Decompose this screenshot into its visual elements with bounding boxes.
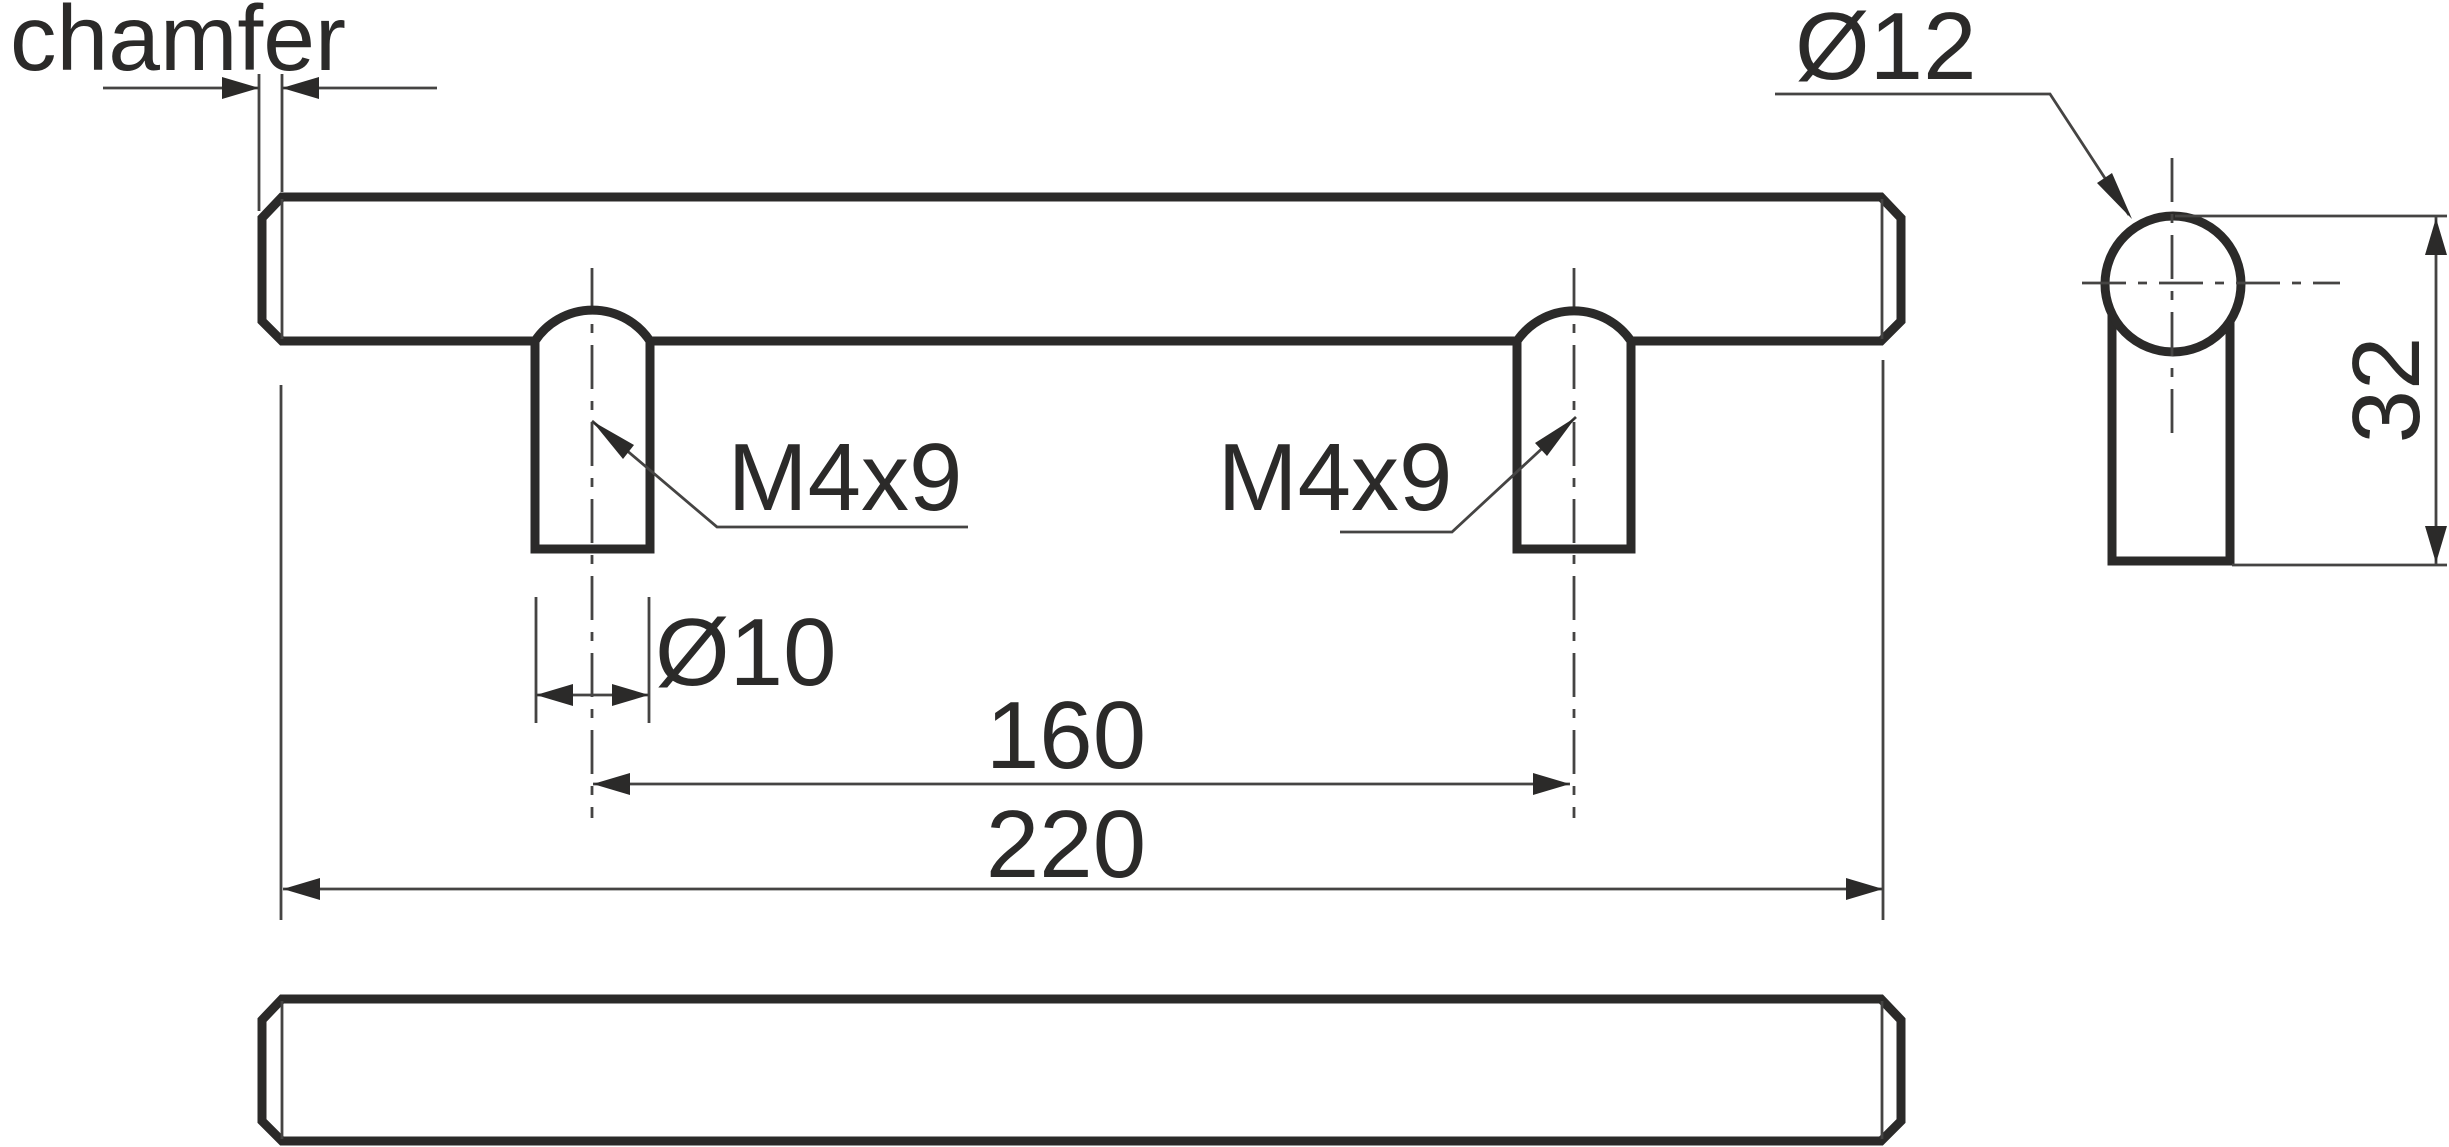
post-diameter-label: Ø10 bbox=[655, 599, 836, 706]
thread-note-right: M4x9 bbox=[1218, 417, 1576, 532]
dim220-arrow-right-icon bbox=[1846, 878, 1883, 900]
technical-drawing-canvas: chamfer M4x9 M4x9 Ø10 160 220 bbox=[0, 0, 2449, 1147]
thread-right-label: M4x9 bbox=[1218, 424, 1453, 531]
thread-left-label: M4x9 bbox=[728, 424, 963, 531]
bar-outline bbox=[262, 197, 1901, 341]
side-height-label: 32 bbox=[2333, 337, 2440, 444]
post-diameter-dimension: Ø10 bbox=[536, 597, 836, 723]
dia10-arrow-left-icon bbox=[536, 684, 573, 706]
overall-length-label: 220 bbox=[986, 791, 1146, 898]
chamfer-dimension: chamfer bbox=[10, 0, 437, 211]
bottom-bar-outline bbox=[262, 999, 1901, 1141]
bottom-view bbox=[262, 999, 1901, 1141]
hole-spacing-label: 160 bbox=[986, 682, 1146, 789]
head-diameter-label: Ø12 bbox=[1795, 0, 1976, 100]
dim32-arrow-up-icon bbox=[2425, 218, 2447, 255]
dim220-arrow-left-icon bbox=[283, 878, 320, 900]
dim32-arrow-down-icon bbox=[2425, 526, 2447, 563]
head-diameter-note: Ø12 bbox=[1775, 0, 2132, 219]
dia12-leader-arrow-icon bbox=[2097, 173, 2132, 219]
dim160-arrow-left-icon bbox=[593, 773, 630, 795]
side-view bbox=[2082, 158, 2340, 561]
chamfer-label: chamfer bbox=[10, 0, 346, 90]
thread-left-leader-arrow-icon bbox=[592, 421, 634, 459]
overall-length-dimension: 220 bbox=[281, 360, 1883, 920]
dim160-arrow-right-icon bbox=[1533, 773, 1570, 795]
handle-technical-drawing: chamfer M4x9 M4x9 Ø10 160 220 bbox=[0, 0, 2449, 1147]
dia10-arrow-right-icon bbox=[612, 684, 649, 706]
